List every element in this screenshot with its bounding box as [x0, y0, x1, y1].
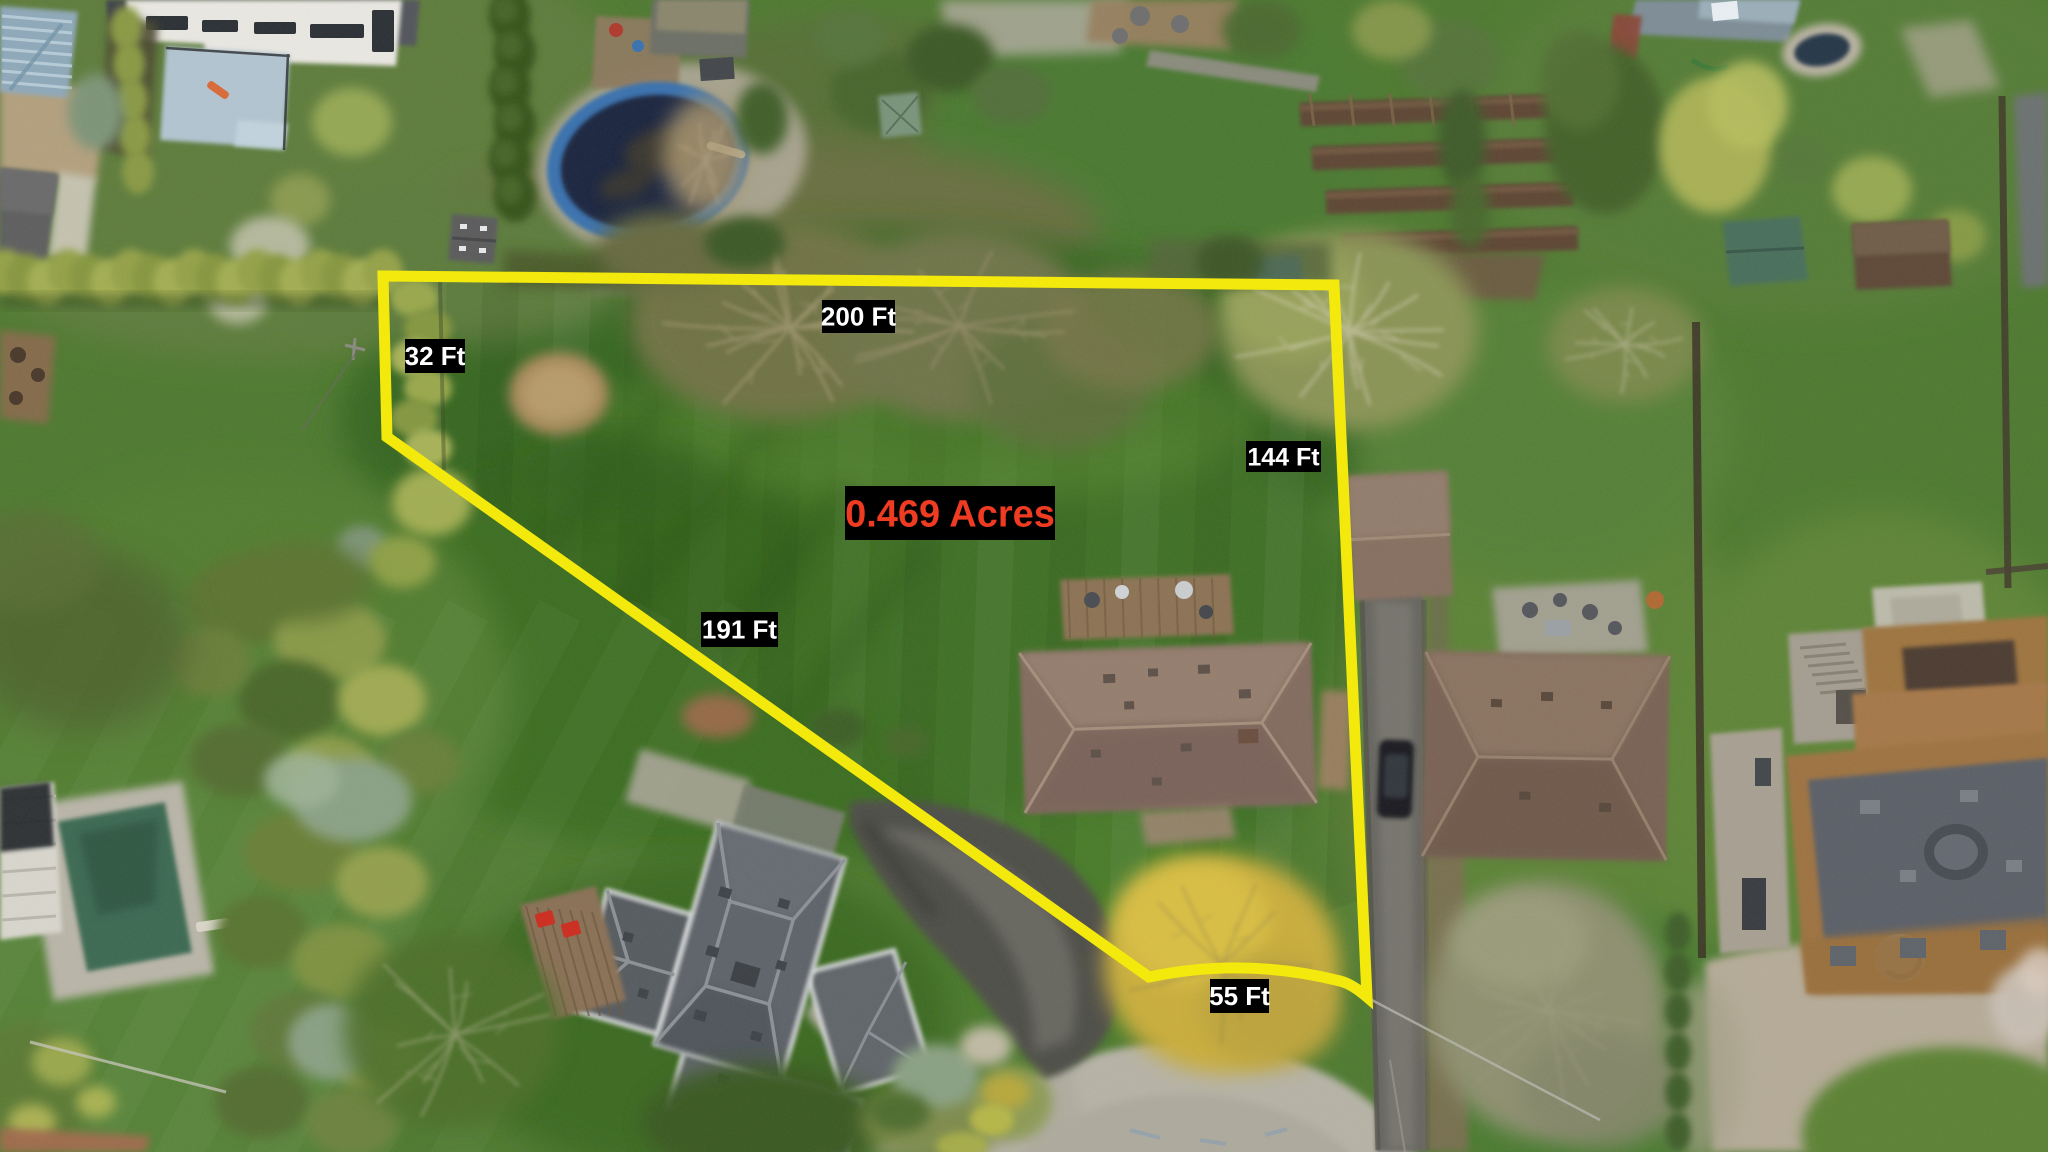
svg-text:144 Ft: 144 Ft [1247, 443, 1320, 471]
svg-text:200 Ft: 200 Ft [821, 302, 896, 332]
svg-text:55 Ft: 55 Ft [1209, 981, 1270, 1011]
svg-text:191 Ft: 191 Ft [702, 615, 777, 645]
svg-text:32 Ft: 32 Ft [405, 341, 466, 371]
svg-text:0.469 Acres: 0.469 Acres [845, 493, 1055, 535]
